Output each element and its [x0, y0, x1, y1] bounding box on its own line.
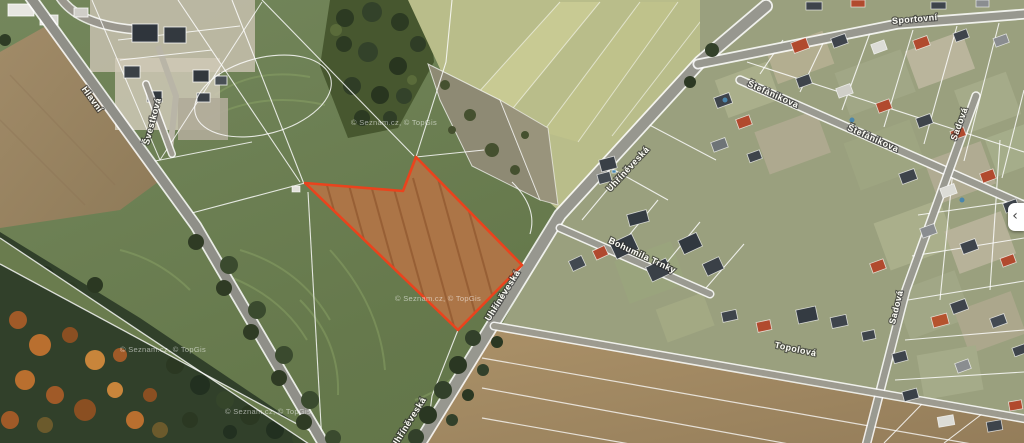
chevron-left-icon: ‹ [1012, 209, 1018, 223]
collapse-panel-button[interactable]: ‹ [1008, 203, 1024, 231]
map-watermark: © Seznam.cz, © TopGis [225, 407, 311, 416]
map-watermark: © Seznam.cz, © TopGis [351, 118, 437, 127]
map-watermark: © Seznam.cz, © TopGis [395, 294, 481, 303]
map-canvas[interactable]: © Seznam.cz, © TopGis© Seznam.cz, © TopG… [0, 0, 1024, 443]
aerial-map-image[interactable]: © Seznam.cz, © TopGis© Seznam.cz, © TopG… [0, 0, 1024, 443]
map-watermark: © Seznam.cz, © TopGis [120, 345, 206, 354]
